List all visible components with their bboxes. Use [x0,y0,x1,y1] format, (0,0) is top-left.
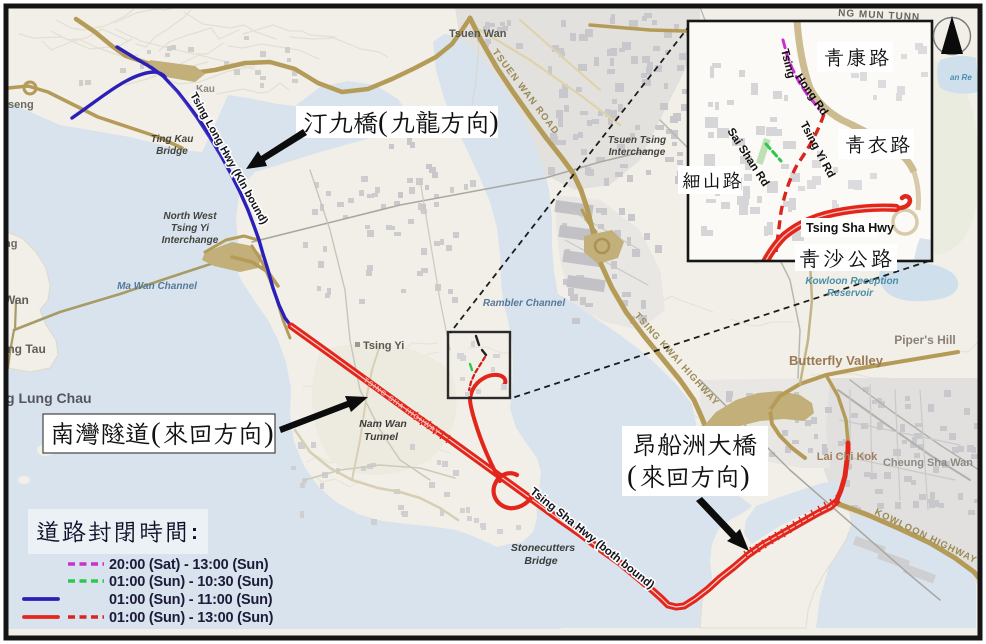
svg-text:(: ( [378,106,388,138]
svg-text:): ) [264,417,274,449]
svg-text:Bridge: Bridge [156,146,188,157]
svg-text:): ) [489,106,499,138]
svg-text:Reservoir: Reservoir [827,288,874,299]
svg-text::: : [191,521,198,544]
svg-text:Nam Wan: Nam Wan [359,418,407,430]
svg-text:Butterfly Valley: Butterfly Valley [789,353,884,368]
svg-text:g Lung Chau: g Lung Chau [6,390,92,406]
svg-text:North West: North West [163,211,217,222]
svg-text:Rambler Channel: Rambler Channel [483,298,565,309]
svg-text:Tsuen Wan: Tsuen Wan [449,28,507,40]
svg-text:Interchange: Interchange [609,147,666,158]
svg-text:seng: seng [8,99,34,111]
svg-text:Piper's Hill: Piper's Hill [894,333,956,347]
svg-text:Tsing Sha Hwy: Tsing Sha Hwy [806,221,894,235]
svg-text:Cheung Sha Wan: Cheung Sha Wan [883,457,973,469]
svg-text:Tsing Yi: Tsing Yi [171,223,209,234]
svg-text:Lai Chi Kok: Lai Chi Kok [817,451,878,463]
svg-text:(: ( [627,460,637,492]
svg-text:Ma Wan Channel: Ma Wan Channel [117,281,197,292]
svg-text:01:00 (Sun) - 13:00 (Sun): 01:00 (Sun) - 13:00 (Sun) [109,610,274,626]
svg-text:Stonecutters: Stonecutters [511,542,575,554]
svg-text:an Re: an Re [950,73,972,82]
svg-text:Tunnel: Tunnel [364,431,399,443]
svg-text:Tsuen Tsing: Tsuen Tsing [608,135,666,146]
svg-text:Bridge: Bridge [524,555,557,567]
svg-text:20:00 (Sat) - 13:00 (Sun): 20:00 (Sat) - 13:00 (Sun) [109,557,269,573]
svg-text:Tsing Yi: Tsing Yi [363,340,404,352]
svg-text:Ting Kau: Ting Kau [151,134,194,145]
svg-text:Kowloon Reception: Kowloon Reception [805,276,898,287]
svg-text:01:00 (Sun) - 11:00 (Sun): 01:00 (Sun) - 11:00 (Sun) [109,592,273,608]
svg-text:(: ( [151,417,161,449]
svg-text:Interchange: Interchange [162,235,219,246]
svg-text:): ) [740,460,750,492]
svg-text:ing Tau: ing Tau [4,342,46,356]
svg-text:01:00 (Sun) - 10:30 (Sun): 01:00 (Sun) - 10:30 (Sun) [109,574,274,590]
